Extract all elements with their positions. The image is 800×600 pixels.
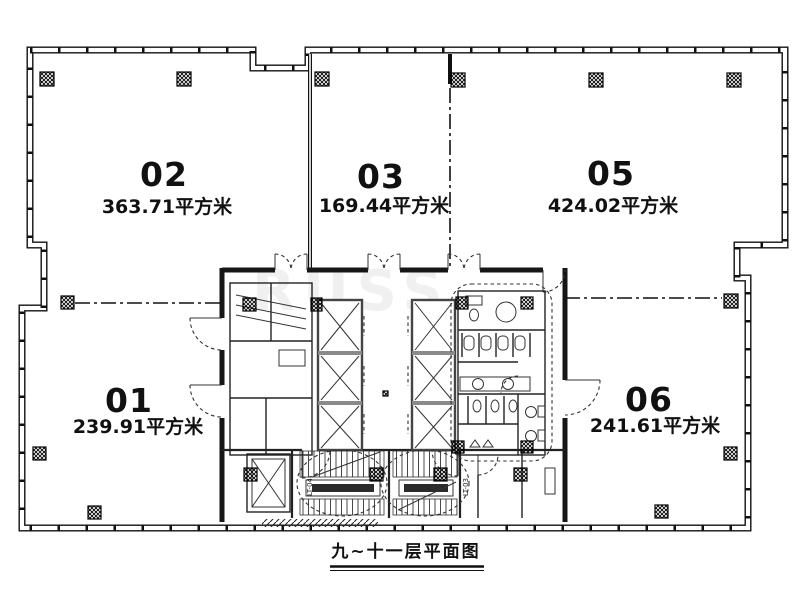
stair-label-lt03: LT-03: [462, 478, 470, 496]
stair-label-lt04: LT-04: [306, 477, 314, 496]
wall-hatch-strip: [262, 519, 378, 527]
unit-06-number: 06: [625, 380, 673, 419]
sink-counter: [460, 377, 530, 391]
restroom-boundary: [451, 284, 552, 461]
unit-02-number: 02: [140, 155, 188, 194]
unit-01-area: 239.91平方米: [73, 415, 204, 438]
unit-06-label: 06 241.61平方米: [590, 380, 721, 437]
unit-05-label: 05 424.02平方米: [548, 154, 679, 217]
floorplan-drawing: RUSS: [0, 0, 800, 600]
accessible-wc-circle: [496, 302, 516, 322]
unit-01-number: 01: [105, 381, 153, 420]
unit-05-area: 424.02平方米: [548, 194, 679, 217]
unit-01-label: 01 239.91平方米: [73, 381, 204, 438]
unit-02-label: 02 363.71平方米: [102, 155, 233, 218]
restroom-block: [451, 284, 552, 461]
elevator-bank-right: [408, 300, 455, 450]
service-room-right: [478, 450, 555, 518]
floorplan-page: RUSS: [0, 0, 800, 600]
unit-03-label: 03 169.44平方米: [319, 157, 450, 217]
unit-05-number: 05: [587, 154, 635, 193]
unit-02-area: 363.71平方米: [102, 195, 233, 218]
urinals: [462, 333, 530, 357]
wc-fixtures-right: [526, 406, 546, 442]
elevator-bank-left: [318, 300, 364, 450]
floor-caption: 九~十一层平面图: [330, 541, 480, 562]
unit-06-area: 241.61平方米: [590, 414, 721, 437]
fire-elevator: [247, 454, 290, 512]
toilet-stalls: [458, 396, 518, 424]
unit-03-area: 169.44平方米: [319, 194, 450, 217]
caption-block: 九~十一层平面图: [330, 541, 484, 571]
stairwell-lt03: LT-03: [381, 450, 470, 516]
stairwell-lt04: LT-04: [297, 450, 387, 516]
lobby-column: [383, 391, 388, 396]
vent-triangles: [470, 440, 493, 447]
unit-03-number: 03: [357, 157, 405, 196]
